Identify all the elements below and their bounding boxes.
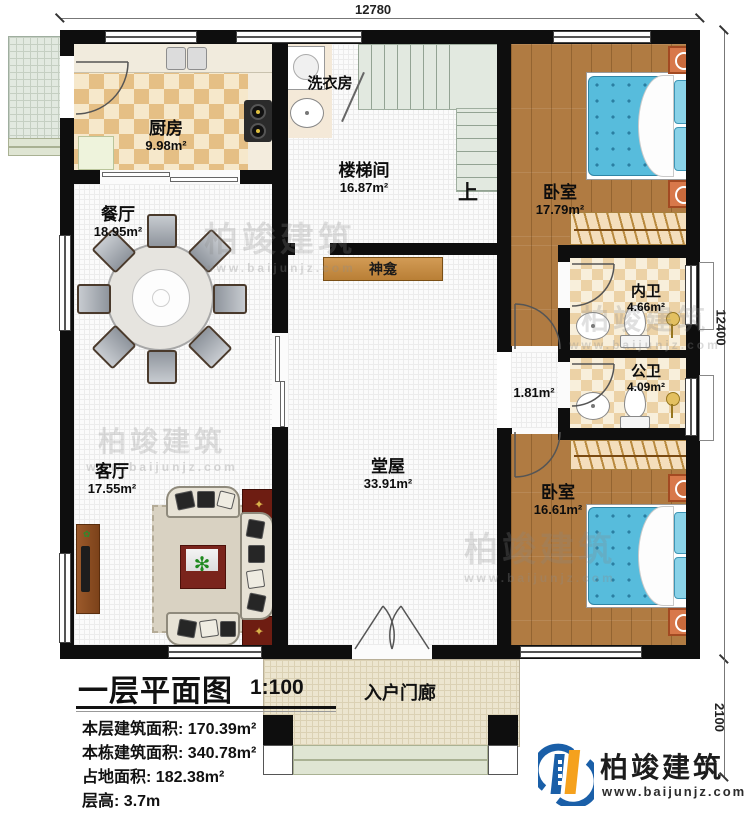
door-leaf xyxy=(355,606,383,649)
floor-plan: 12780 12400 2100 神龛 xyxy=(0,0,750,822)
door-arc xyxy=(515,304,560,349)
brand-logo: 柏竣建筑 www.baijunjz.com xyxy=(538,740,743,810)
room-label-dining: 餐厅 18.95m² xyxy=(78,206,158,239)
door-arc xyxy=(76,62,128,114)
brand-url: www.baijunjz.com xyxy=(602,784,746,799)
room-label-main-hall: 堂屋 33.91m² xyxy=(348,458,428,491)
room-label-porch: 入户门廊 xyxy=(340,684,460,704)
porch-step xyxy=(293,760,488,775)
room-label-hallway: 1.81m² xyxy=(504,386,564,400)
porch-pillar xyxy=(263,715,293,745)
porch-pillar xyxy=(488,715,518,745)
door-arc xyxy=(515,432,560,477)
title-underline-thin xyxy=(76,711,336,712)
stairs-up-label: 上 xyxy=(454,182,482,204)
brand-name: 柏竣建筑 xyxy=(600,746,724,786)
door-arc xyxy=(390,606,401,649)
room-label-kitchen: 厨房 9.98m² xyxy=(116,120,216,153)
stat-floor-area: 本层建筑面积: 170.39m² xyxy=(82,718,256,742)
stat-building-area: 本栋建筑面积: 340.78m² xyxy=(82,742,256,766)
room-label-living: 客厅 17.55m² xyxy=(74,463,150,496)
pillar-base xyxy=(488,745,518,775)
title-underline xyxy=(76,706,336,709)
plan-stats: 本层建筑面积: 170.39m² 本栋建筑面积: 340.78m² 占地面积: … xyxy=(82,718,256,814)
door-leaf xyxy=(401,606,429,649)
room-label-laundry: 洗衣房 xyxy=(296,76,364,93)
room-label-bedroom2: 卧室 16.61m² xyxy=(508,484,608,517)
door-arc xyxy=(383,606,394,649)
room-label-bedroom1: 卧室 17.79m² xyxy=(510,184,610,217)
plan-scale: 1:100 xyxy=(250,676,304,700)
room-label-ensuite: 内卫 4.66m² xyxy=(608,284,684,314)
porch-step xyxy=(293,745,488,760)
stat-floor-height: 层高: 3.7m xyxy=(82,790,256,814)
plan-title: 一层平面图 xyxy=(78,666,233,710)
stat-land-area: 占地面积: 182.38m² xyxy=(82,766,256,790)
room-label-stairwell: 楼梯间 16.87m² xyxy=(314,162,414,195)
pillar-base xyxy=(263,745,293,775)
brand-logo-icon xyxy=(538,742,594,806)
room-label-public-bath: 公卫 4.09m² xyxy=(608,364,684,394)
